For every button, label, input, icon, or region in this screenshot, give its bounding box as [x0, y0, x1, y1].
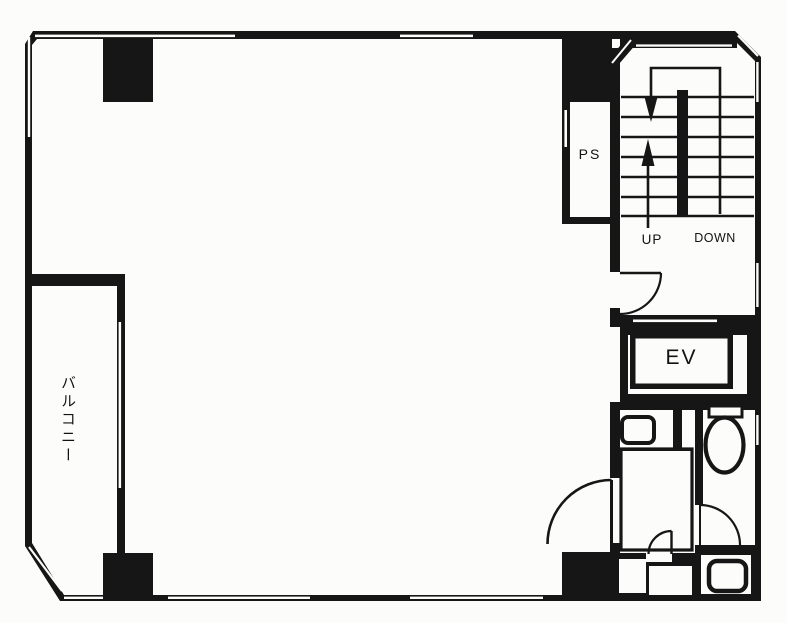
washroom [622, 412, 693, 550]
pipe-shaft-label: PS [566, 147, 614, 161]
stairwell [622, 50, 753, 215]
floor-plan-page: PS UP DOWN EV バルコニー [0, 0, 787, 623]
main-room [40, 45, 555, 585]
balcony-label: バルコニー [60, 375, 75, 485]
stairs-down-label: DOWN [683, 232, 747, 245]
toilet-room [705, 412, 753, 543]
cleaning-sink-icon [709, 561, 746, 591]
stairs-up-label: UP [633, 233, 671, 247]
elevator-label: EV [649, 347, 714, 368]
column [562, 552, 618, 597]
